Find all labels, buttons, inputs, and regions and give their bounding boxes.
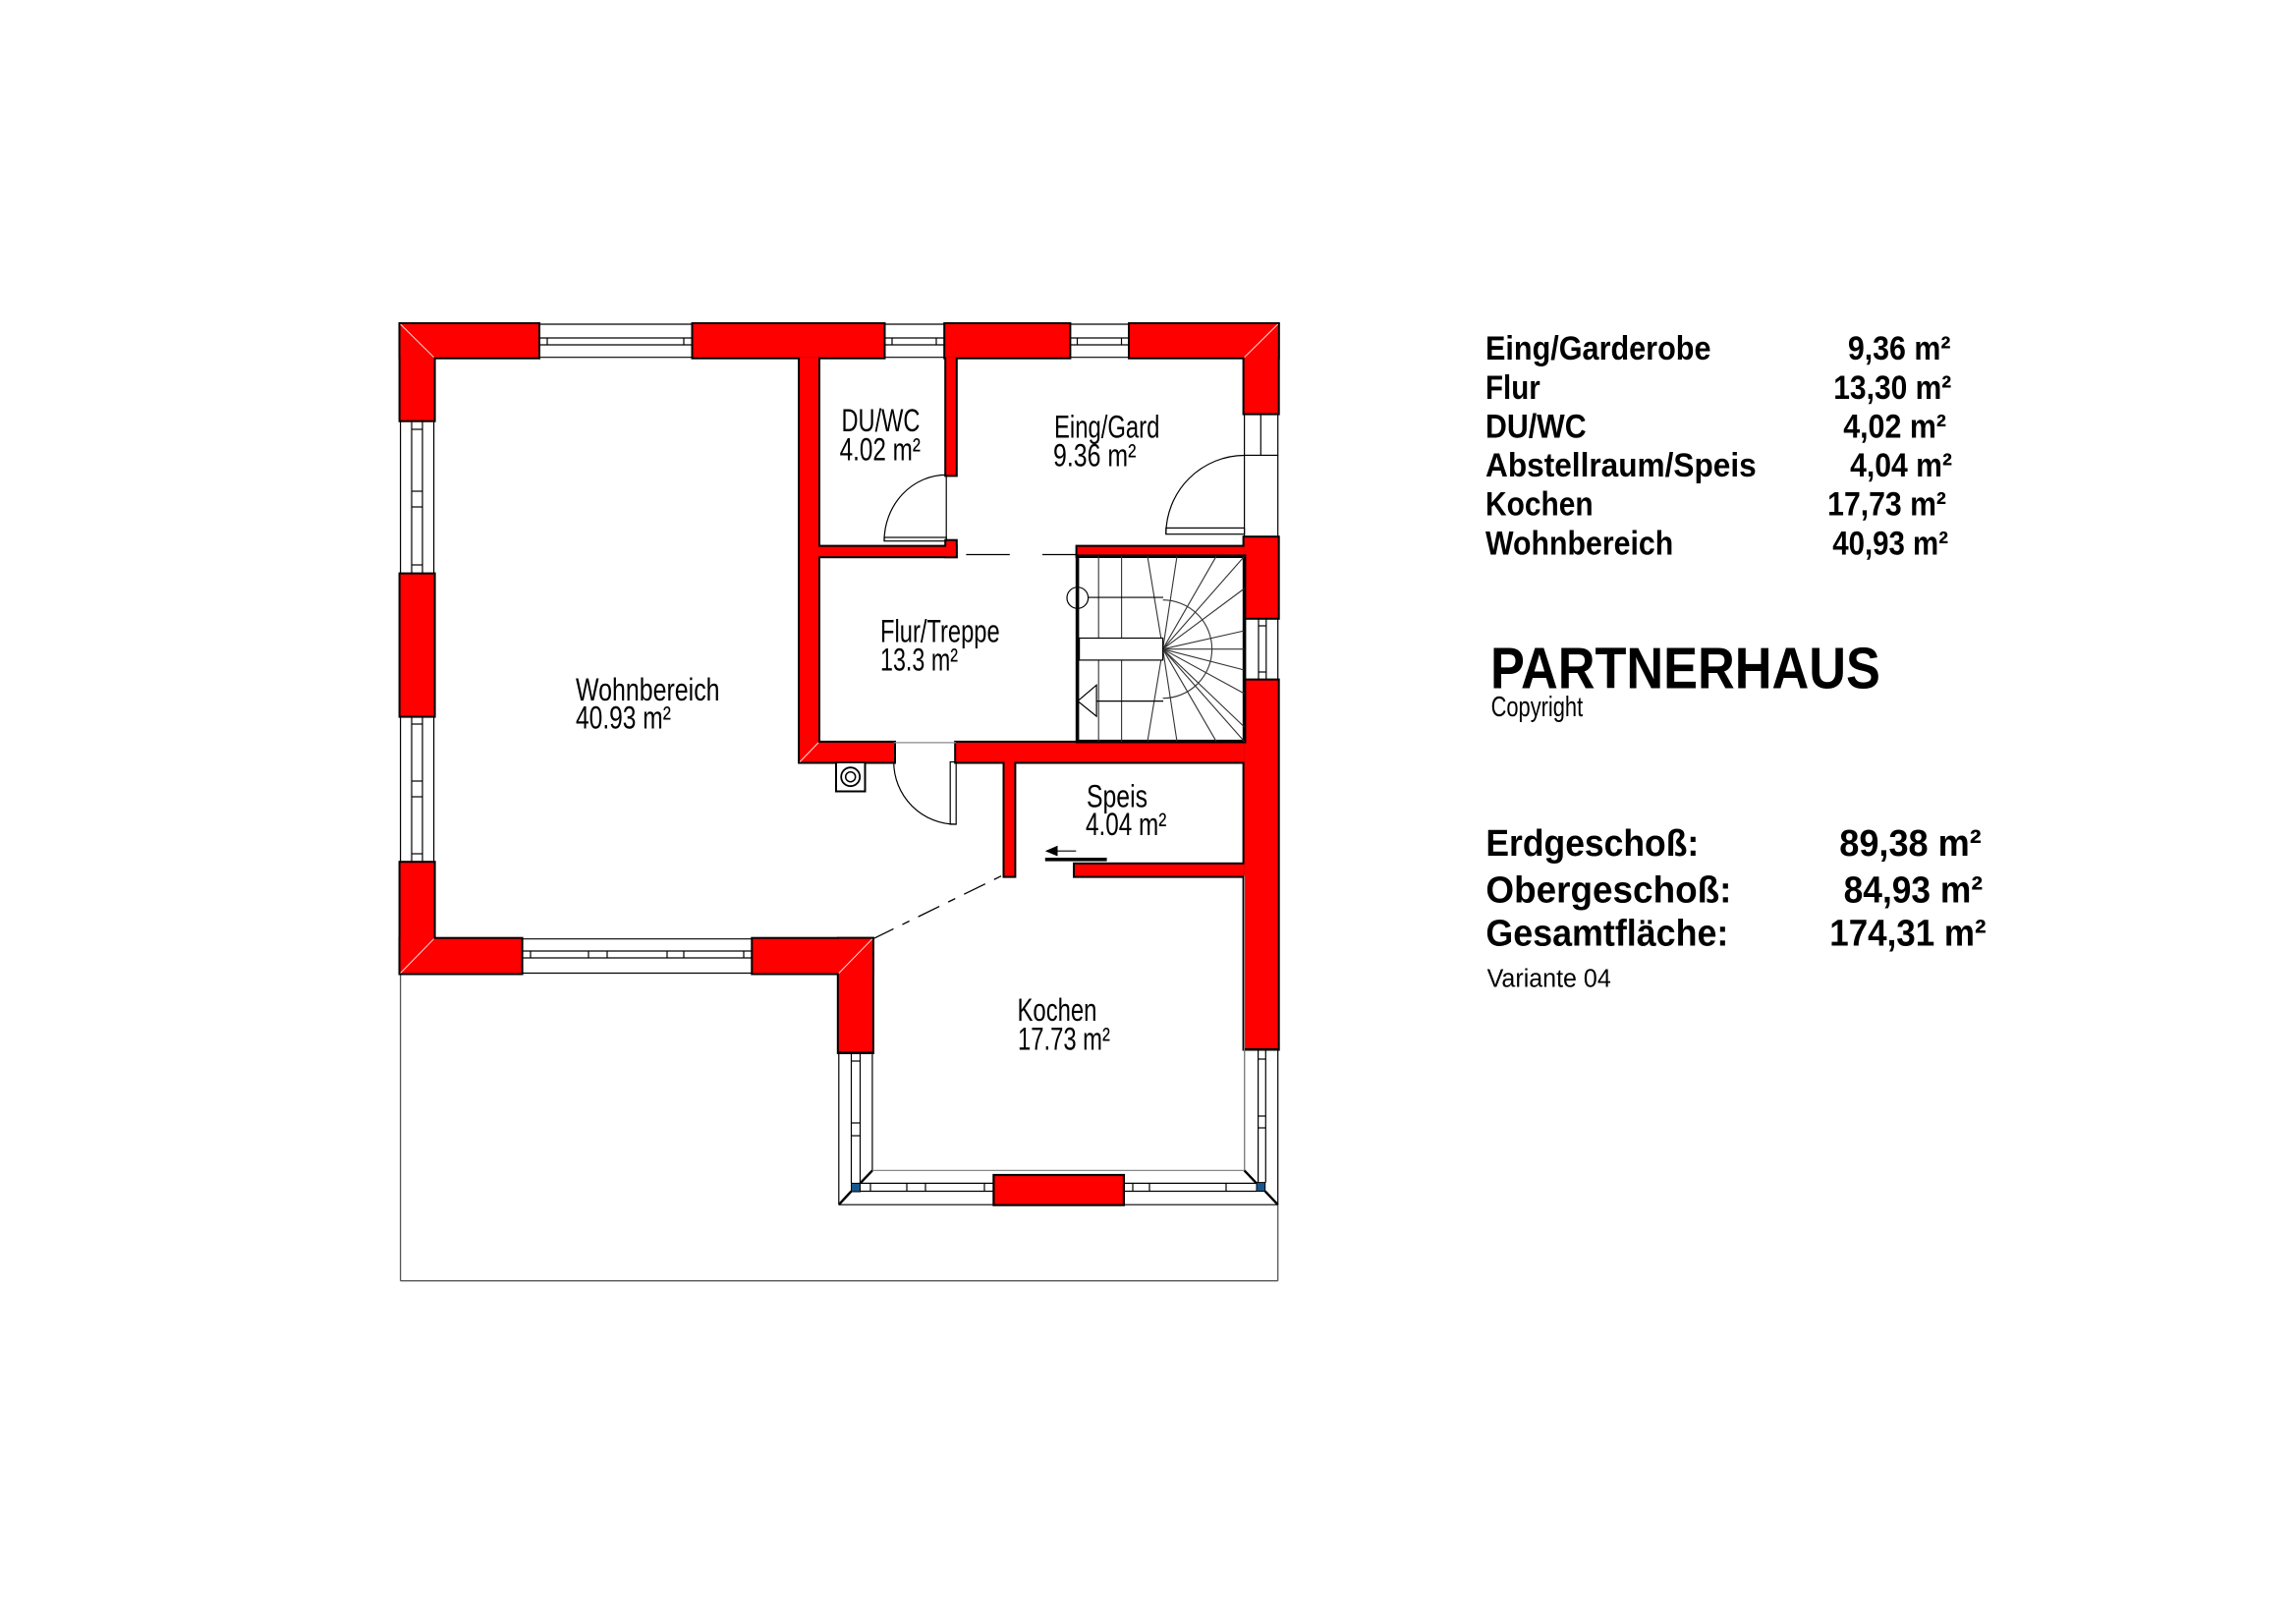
svg-text:Copyright: Copyright bbox=[1491, 692, 1584, 723]
svg-text:174,31 m²: 174,31 m² bbox=[1829, 912, 1986, 954]
svg-text:40,93 m²: 40,93 m² bbox=[1832, 524, 1948, 561]
svg-text:13.3 m²: 13.3 m² bbox=[880, 643, 958, 677]
svg-text:DU/WC: DU/WC bbox=[1485, 408, 1587, 445]
svg-text:Eing/Garderobe: Eing/Garderobe bbox=[1485, 329, 1710, 366]
svg-text:9.36 m²: 9.36 m² bbox=[1053, 438, 1136, 474]
svg-text:4,02 m²: 4,02 m² bbox=[1843, 408, 1946, 445]
svg-text:Flur: Flur bbox=[1485, 368, 1540, 406]
svg-text:84,93 m²: 84,93 m² bbox=[1844, 868, 1983, 910]
svg-text:Erdgeschoß:: Erdgeschoß: bbox=[1485, 822, 1699, 864]
svg-text:4.04 m²: 4.04 m² bbox=[1086, 808, 1166, 843]
svg-text:Wohnbereich: Wohnbereich bbox=[1485, 525, 1673, 562]
svg-text:Kochen: Kochen bbox=[1485, 485, 1594, 523]
svg-text:89,38 m²: 89,38 m² bbox=[1839, 821, 1982, 864]
svg-text:Abstellraum/Speis: Abstellraum/Speis bbox=[1485, 446, 1757, 483]
svg-text:Obergeschoß:: Obergeschoß: bbox=[1485, 868, 1731, 911]
svg-text:Gesamtfläche:: Gesamtfläche: bbox=[1485, 913, 1728, 954]
svg-text:Variante 04: Variante 04 bbox=[1487, 965, 1611, 993]
svg-text:9,36 m²: 9,36 m² bbox=[1848, 329, 1951, 366]
svg-text:17,73 m²: 17,73 m² bbox=[1827, 485, 1946, 523]
svg-text:4.02 m²: 4.02 m² bbox=[840, 432, 921, 468]
svg-text:40.93 m²: 40.93 m² bbox=[576, 701, 671, 737]
svg-text:17.73 m²: 17.73 m² bbox=[1018, 1021, 1110, 1056]
svg-text:13,30 m²: 13,30 m² bbox=[1833, 368, 1951, 406]
svg-text:4,04 m²: 4,04 m² bbox=[1850, 446, 1952, 483]
